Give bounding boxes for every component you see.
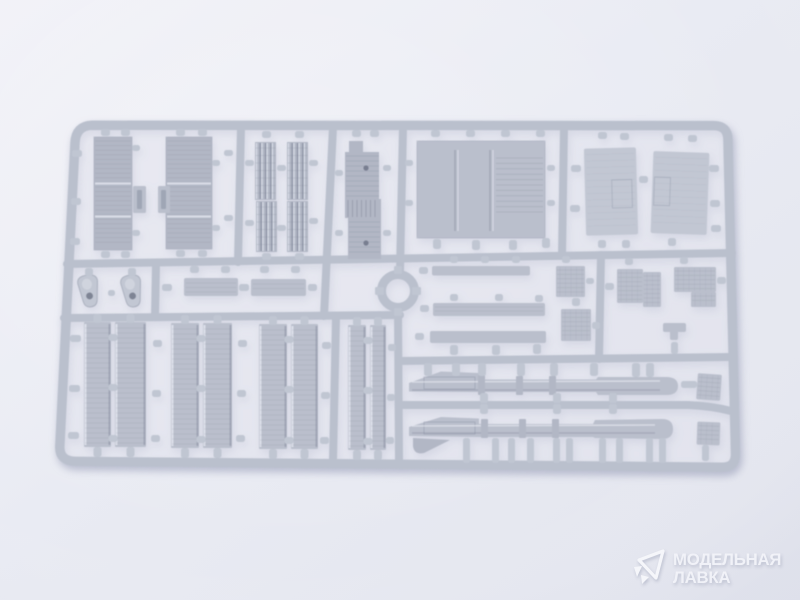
svg-text:МОДЕЛЬНАЯ: МОДЕЛЬНАЯ — [673, 550, 781, 569]
svg-text:ЛАВКА: ЛАВКА — [673, 568, 730, 587]
